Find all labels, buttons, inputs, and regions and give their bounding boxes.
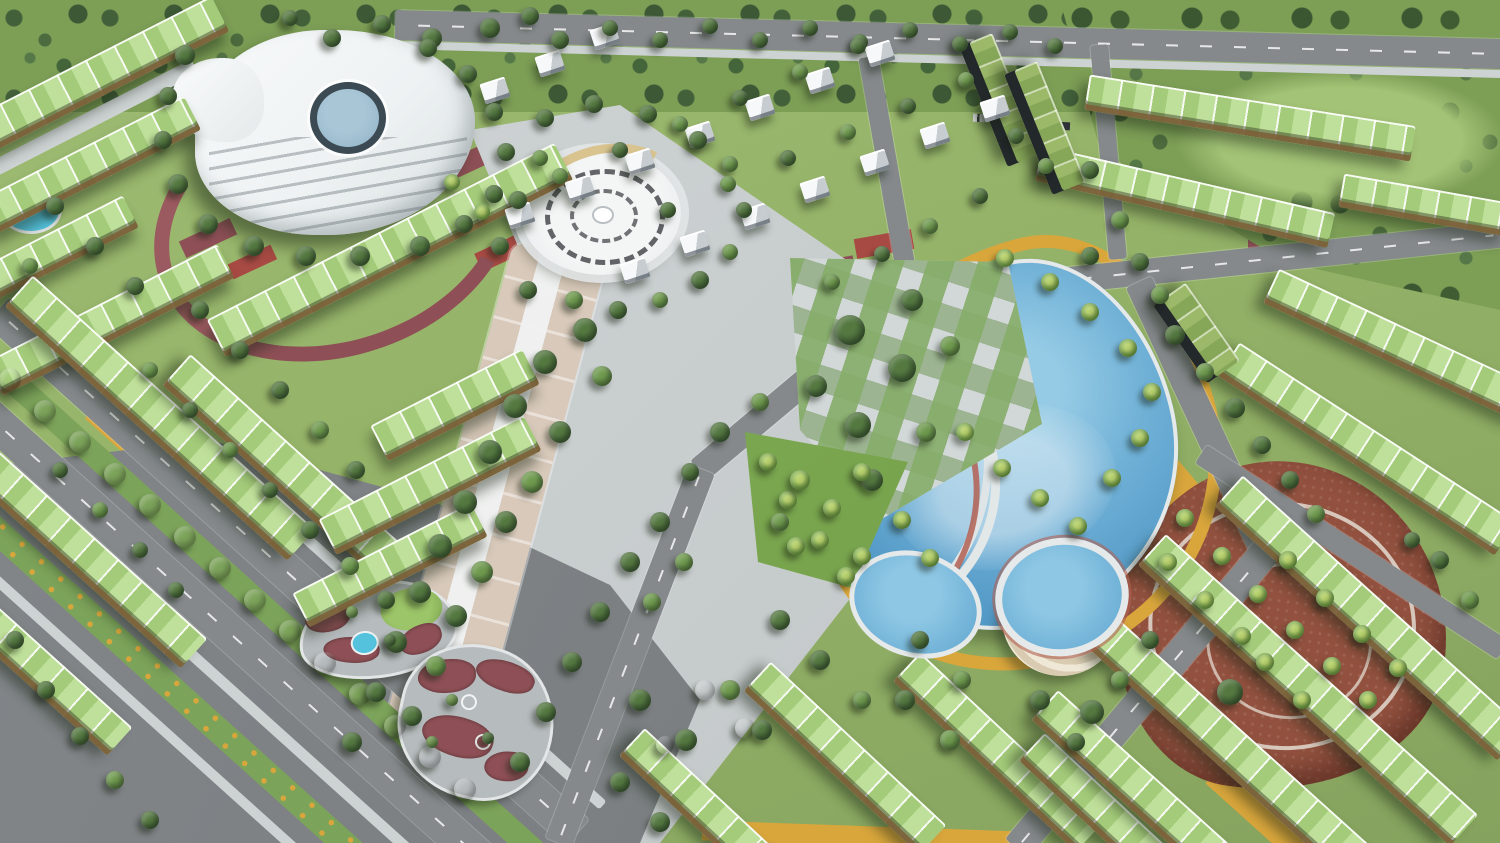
- tree: [159, 87, 177, 105]
- tree: [106, 771, 124, 789]
- tree: [652, 32, 668, 48]
- palm-tree: [823, 499, 841, 517]
- tree: [262, 482, 278, 498]
- tree: [71, 727, 89, 745]
- palm-tree: [419, 746, 441, 768]
- tree: [840, 124, 856, 140]
- palm-tree: [279, 620, 301, 642]
- tree: [675, 553, 693, 571]
- tree: [1008, 128, 1024, 144]
- tree: [835, 315, 865, 345]
- tree: [940, 336, 960, 356]
- tree: [485, 103, 503, 121]
- tree: [168, 582, 184, 598]
- tree: [52, 462, 68, 478]
- palm-tree: [1131, 429, 1149, 447]
- tree: [282, 10, 298, 26]
- tree: [752, 32, 768, 48]
- palm-tree: [1389, 659, 1407, 677]
- tree: [521, 7, 539, 25]
- tree: [612, 142, 628, 158]
- palm-tree: [993, 459, 1011, 477]
- tree: [175, 45, 195, 65]
- palm-tree: [69, 431, 91, 453]
- tree: [672, 116, 688, 132]
- tree: [810, 650, 830, 670]
- palm-tree: [1233, 627, 1251, 645]
- tree: [1002, 24, 1018, 40]
- tree: [573, 318, 597, 342]
- tree: [792, 64, 808, 80]
- tree: [271, 381, 289, 399]
- aerial-masterplan-render: [0, 0, 1500, 843]
- tree: [722, 244, 738, 260]
- palm-tree: [779, 491, 797, 509]
- tree: [503, 394, 527, 418]
- tree: [911, 631, 929, 649]
- palm-tree: [837, 567, 855, 585]
- tree: [46, 197, 64, 215]
- tree: [1253, 436, 1271, 454]
- tree: [1081, 161, 1099, 179]
- palm-tree: [1286, 621, 1304, 639]
- tree: [168, 174, 188, 194]
- tree: [650, 812, 670, 832]
- tree: [1081, 247, 1099, 265]
- tree: [610, 772, 630, 792]
- tree: [231, 341, 249, 359]
- tree: [824, 274, 840, 290]
- tree: [1165, 325, 1185, 345]
- tree: [536, 109, 554, 127]
- tree: [519, 281, 537, 299]
- tree: [141, 811, 159, 829]
- tree: [402, 706, 422, 726]
- tree: [1067, 733, 1085, 751]
- tree: [736, 202, 752, 218]
- palm-tree: [1081, 303, 1099, 321]
- tree: [802, 20, 818, 36]
- palm-tree: [956, 423, 974, 441]
- tree: [675, 729, 697, 751]
- tree: [770, 610, 790, 630]
- tree: [510, 752, 530, 772]
- palm-tree: [209, 557, 231, 579]
- tree: [532, 150, 548, 166]
- tree: [366, 682, 386, 702]
- tree: [471, 561, 493, 583]
- tree: [652, 292, 668, 308]
- tree: [311, 421, 329, 439]
- tree: [453, 490, 477, 514]
- tree: [732, 90, 748, 106]
- tree: [691, 271, 709, 289]
- tree: [751, 393, 769, 411]
- tree: [521, 471, 543, 493]
- tree: [37, 681, 55, 699]
- tree: [702, 18, 718, 34]
- palm-tree: [1249, 585, 1267, 603]
- palm-tree: [1256, 653, 1274, 671]
- tree: [478, 440, 502, 464]
- palm-tree: [1213, 547, 1231, 565]
- palm-tree: [474, 204, 490, 220]
- palm-tree: [787, 537, 805, 555]
- tree: [850, 38, 866, 54]
- tree: [132, 542, 148, 558]
- tree: [895, 690, 915, 710]
- tree: [1431, 551, 1449, 569]
- tree: [92, 502, 108, 518]
- island-sculpture: [459, 693, 478, 712]
- tree: [1047, 38, 1063, 54]
- tree: [853, 691, 871, 709]
- tree: [480, 18, 500, 38]
- tree: [720, 176, 736, 192]
- tree: [940, 730, 960, 750]
- tree: [455, 215, 473, 233]
- tree: [22, 258, 38, 274]
- tree: [681, 463, 699, 481]
- palm-tree: [1176, 509, 1194, 527]
- tree: [1141, 631, 1159, 649]
- palm-tree: [759, 453, 777, 471]
- tree: [958, 72, 974, 88]
- tree: [1281, 471, 1299, 489]
- tree: [154, 131, 172, 149]
- tree: [900, 98, 916, 114]
- palm-tree: [1323, 657, 1341, 675]
- tree: [972, 188, 988, 204]
- tree: [565, 291, 583, 309]
- tree: [346, 606, 358, 618]
- palm-tree: [1143, 383, 1161, 401]
- villa-house: [919, 121, 950, 149]
- palm-tree: [314, 652, 336, 674]
- palm-tree: [790, 470, 810, 490]
- palm-tree: [1119, 339, 1137, 357]
- tree: [1111, 671, 1129, 689]
- tree: [222, 442, 238, 458]
- tree: [373, 15, 391, 33]
- tree: [590, 602, 610, 622]
- tree: [874, 246, 890, 262]
- palm-tree: [1159, 553, 1177, 571]
- tree: [845, 412, 871, 438]
- palm-tree: [1359, 691, 1377, 709]
- tree: [1196, 363, 1214, 381]
- tree: [482, 732, 494, 744]
- palm-tree: [1196, 591, 1214, 609]
- palm-tree: [34, 400, 56, 422]
- tree: [536, 702, 556, 722]
- tree: [952, 36, 968, 52]
- palm-tree: [454, 778, 476, 800]
- palm-tree: [996, 249, 1014, 267]
- tree: [609, 301, 627, 319]
- tree: [689, 131, 707, 149]
- tree: [660, 202, 676, 218]
- tree: [551, 31, 569, 49]
- palm-tree: [811, 531, 829, 549]
- tree: [710, 422, 730, 442]
- tree: [888, 354, 916, 382]
- tree: [485, 185, 503, 203]
- tree: [347, 461, 365, 479]
- tree: [86, 237, 104, 255]
- tree: [629, 689, 651, 711]
- tree: [585, 95, 603, 113]
- palm-tree: [1293, 691, 1311, 709]
- tree: [445, 605, 467, 627]
- tree: [126, 277, 144, 295]
- tree: [916, 422, 936, 442]
- tree: [1131, 253, 1149, 271]
- palm-tree: [1031, 489, 1049, 507]
- tree: [198, 214, 218, 234]
- villa-house: [799, 175, 830, 203]
- tree: [1307, 505, 1325, 523]
- tree: [805, 375, 827, 397]
- plaza-center-medallion: [592, 206, 614, 224]
- tree: [296, 246, 316, 266]
- tree: [377, 591, 395, 609]
- tree: [549, 421, 571, 443]
- tree: [650, 512, 670, 532]
- tree: [720, 680, 740, 700]
- tree: [1225, 398, 1245, 418]
- tree: [426, 656, 446, 676]
- tree: [922, 218, 938, 234]
- tree: [384, 634, 396, 646]
- tree: [562, 652, 582, 672]
- tree: [191, 301, 209, 319]
- tree: [780, 150, 796, 166]
- tree: [639, 105, 657, 123]
- tree: [592, 366, 612, 386]
- palm-tree: [1041, 273, 1059, 291]
- tree: [419, 39, 437, 57]
- tree: [341, 557, 359, 575]
- tree: [1030, 690, 1050, 710]
- palm-tree: [695, 680, 715, 700]
- palm-tree: [0, 368, 21, 390]
- tree: [495, 511, 517, 533]
- palm-tree: [174, 526, 196, 548]
- tree: [1151, 286, 1169, 304]
- tree: [497, 143, 515, 161]
- palm-tree: [1279, 551, 1297, 569]
- tree: [1217, 679, 1243, 705]
- tree: [244, 236, 264, 256]
- tree: [410, 236, 430, 256]
- tree: [752, 720, 772, 740]
- tree: [533, 350, 557, 374]
- palm-tree: [1069, 517, 1087, 535]
- palm-tree: [656, 736, 674, 754]
- tree: [459, 65, 477, 83]
- palm-tree: [1316, 589, 1334, 607]
- tree: [301, 521, 319, 539]
- tree: [1111, 211, 1129, 229]
- palm-tree: [139, 494, 161, 516]
- palm-tree: [1353, 625, 1371, 643]
- tree: [426, 736, 438, 748]
- tree: [428, 534, 452, 558]
- palm-tree: [444, 174, 460, 190]
- tree: [142, 362, 158, 378]
- tree: [901, 289, 923, 311]
- tree: [323, 29, 341, 47]
- tree: [1038, 158, 1054, 174]
- tree: [1461, 591, 1479, 609]
- tree: [552, 168, 568, 184]
- tree: [771, 513, 789, 531]
- clubhouse-atrium-ring: [310, 82, 386, 154]
- tree: [182, 402, 198, 418]
- tree: [643, 593, 661, 611]
- palm-tree: [244, 589, 266, 611]
- tree: [953, 671, 971, 689]
- tree: [1080, 700, 1104, 724]
- palm-tree: [921, 549, 939, 567]
- tree: [342, 732, 362, 752]
- tree: [409, 581, 431, 603]
- palm-tree: [853, 463, 871, 481]
- tree: [602, 20, 618, 36]
- tree: [6, 631, 24, 649]
- tree: [491, 237, 509, 255]
- tree: [509, 191, 527, 209]
- tree: [902, 22, 918, 38]
- palm-tree: [853, 547, 871, 565]
- tree: [620, 552, 640, 572]
- palm-tree: [1103, 469, 1121, 487]
- tree: [350, 246, 370, 266]
- tree: [446, 694, 458, 706]
- tree: [1404, 532, 1420, 548]
- tree: [722, 156, 738, 172]
- palm-tree: [893, 511, 911, 529]
- palm-tree: [104, 463, 126, 485]
